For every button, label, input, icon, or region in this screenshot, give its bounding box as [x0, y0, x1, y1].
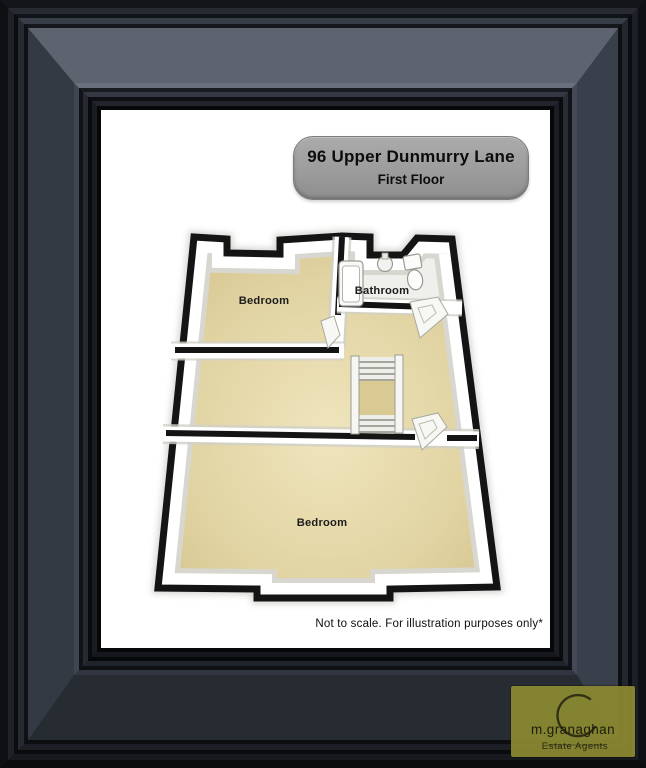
frame-moulding: 96 Upper Dunmurry Lane First Floor [92, 101, 559, 657]
logo-tagline-text: Estate Agents [542, 741, 608, 752]
frame-moulding: 96 Upper Dunmurry Lane First Floor [88, 97, 563, 661]
frame-rabbet: 96 Upper Dunmurry Lane First Floor [97, 106, 554, 652]
room-label-bedroom-top: Bedroom [239, 295, 290, 307]
estate-agent-logo: m.granaghan Estate Agents [511, 686, 635, 757]
room-label-bedroom-bottom: Bedroom [297, 517, 348, 529]
picture-frame: 96 Upper Dunmurry Lane First Floor [0, 0, 646, 768]
frame-moulding: 96 Upper Dunmurry Lane First Floor [79, 88, 572, 670]
staircase [351, 355, 403, 434]
frame-moulding: 96 Upper Dunmurry Lane First Floor [74, 83, 577, 675]
frame-flat-band: 96 Upper Dunmurry Lane First Floor [28, 28, 618, 740]
frame-moulding: 96 Upper Dunmurry Lane First Floor [8, 8, 638, 760]
frame-moulding: 96 Upper Dunmurry Lane First Floor [83, 92, 568, 666]
frame-moulding: 96 Upper Dunmurry Lane First Floor [24, 24, 622, 744]
logo-brand-text: m.granaghan [531, 722, 615, 737]
floorplan-sheet: 96 Upper Dunmurry Lane First Floor [101, 110, 550, 648]
frame-moulding: 96 Upper Dunmurry Lane First Floor [18, 18, 628, 750]
room-label-bathroom: Bathroom [355, 285, 409, 297]
disclaimer-text: Not to scale. For illustration purposes … [315, 618, 543, 630]
floorplan-drawing: Bedroom Bathroom Bedroom [101, 110, 550, 648]
frame-moulding: 96 Upper Dunmurry Lane First Floor [14, 14, 632, 754]
